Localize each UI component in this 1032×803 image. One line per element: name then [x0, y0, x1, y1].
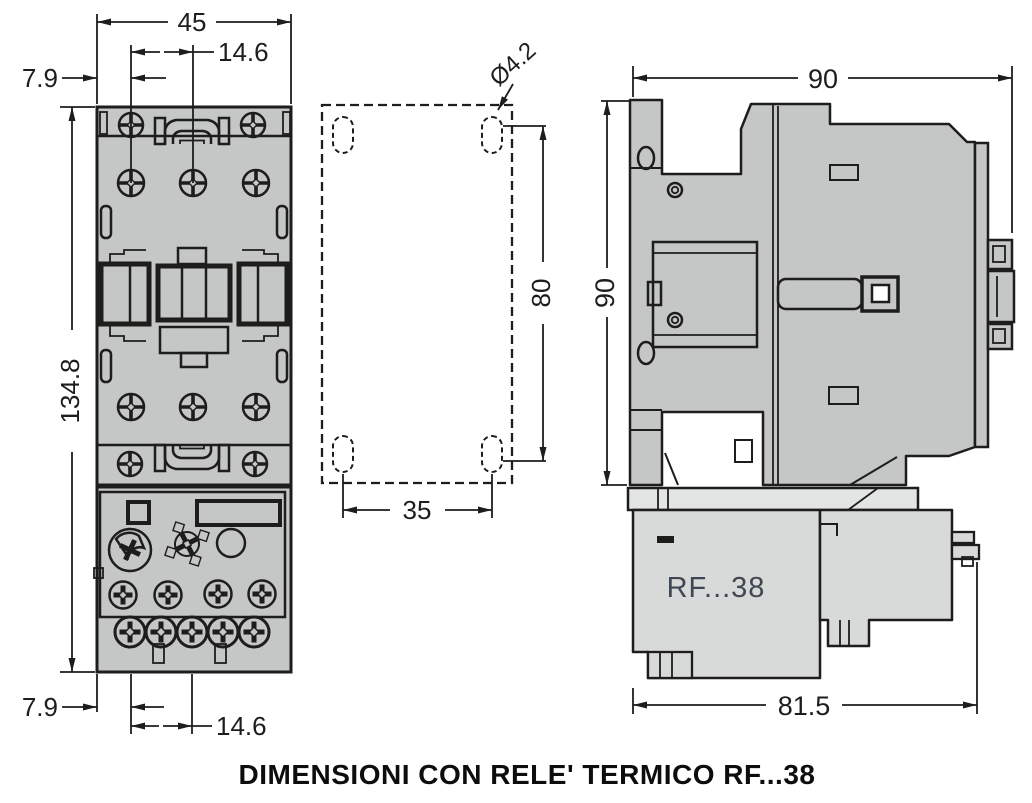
relay-marker — [657, 536, 674, 543]
phillips-screw-icon — [110, 582, 137, 609]
dim-horizontal-hole-spacing-label: 35 — [403, 495, 432, 525]
terminal-rail — [975, 143, 988, 447]
phillips-screw-icon — [243, 452, 267, 476]
phillips-screw-icon — [115, 617, 145, 647]
technical-drawing-page: 45 14.6 7.9 134.8 7.9 14.6 Ø4.2 — [0, 0, 1032, 803]
phillips-screw-icon — [239, 617, 269, 647]
dim-total-height-label: 134.8 — [55, 358, 85, 423]
phillips-screw-icon — [243, 394, 269, 420]
adjust-screw — [952, 532, 974, 543]
dim-hole-diameter-label: Ø4.2 — [485, 37, 542, 92]
phillips-screw-icon — [180, 394, 206, 420]
foot-edge — [665, 453, 678, 485]
mounting-slot — [482, 436, 502, 472]
mounting-slot — [333, 117, 353, 153]
phillips-screw-icon — [118, 394, 144, 420]
terminal-block — [988, 240, 1012, 269]
phillips-screw-icon — [208, 617, 238, 647]
dim-top-width-label: 45 — [178, 7, 207, 37]
technical-drawing: 45 14.6 7.9 134.8 7.9 14.6 Ø4.2 — [0, 0, 1032, 803]
dim-side-height-label: 90 — [590, 278, 620, 308]
phillips-screw-icon — [241, 113, 265, 137]
relay-model-label: RF...38 — [667, 572, 766, 604]
plan-dimensions: Ø4.2 80 35 — [343, 37, 556, 525]
dim-top-edge-offset-label: 7.9 — [22, 63, 58, 93]
phillips-screw-icon — [177, 617, 207, 647]
phillips-screw-icon — [205, 581, 232, 608]
front-view — [94, 107, 291, 672]
dim-side-width-label: 90 — [808, 64, 838, 94]
dim-top-hole-spacing-label: 14.6 — [218, 37, 269, 67]
mounting-slot — [482, 117, 502, 153]
drill-outline — [322, 105, 512, 483]
phillips-screw-icon — [243, 170, 269, 196]
phillips-screw-icon — [146, 617, 176, 647]
dim-depth-with-relay-label: 81.5 — [778, 691, 831, 721]
terminal-block — [988, 324, 1012, 349]
phillips-screw-icon — [118, 452, 142, 476]
mounting-slot — [333, 436, 353, 472]
terminal-block — [988, 271, 1014, 322]
side-view: RF...38 — [628, 100, 1014, 678]
caption-text: DIMENSIONI CON RELE' TERMICO RF...38 — [239, 759, 816, 790]
relay-foot — [648, 652, 692, 678]
dim-bottom-edge-offset-label: 7.9 — [22, 692, 58, 722]
phillips-screw-icon — [249, 581, 276, 608]
clip-window — [872, 285, 889, 302]
contactor-front-body — [97, 107, 291, 485]
relay-side: RF...38 — [628, 488, 979, 678]
mounting-hole-plan — [322, 105, 512, 483]
foot-tab — [735, 440, 752, 462]
dim-vertical-hole-spacing-label: 80 — [526, 279, 556, 308]
contactor-side-body — [630, 100, 975, 485]
dim-bottom-hole-spacing-label: 14.6 — [216, 711, 267, 741]
phillips-screw-icon — [155, 582, 182, 609]
